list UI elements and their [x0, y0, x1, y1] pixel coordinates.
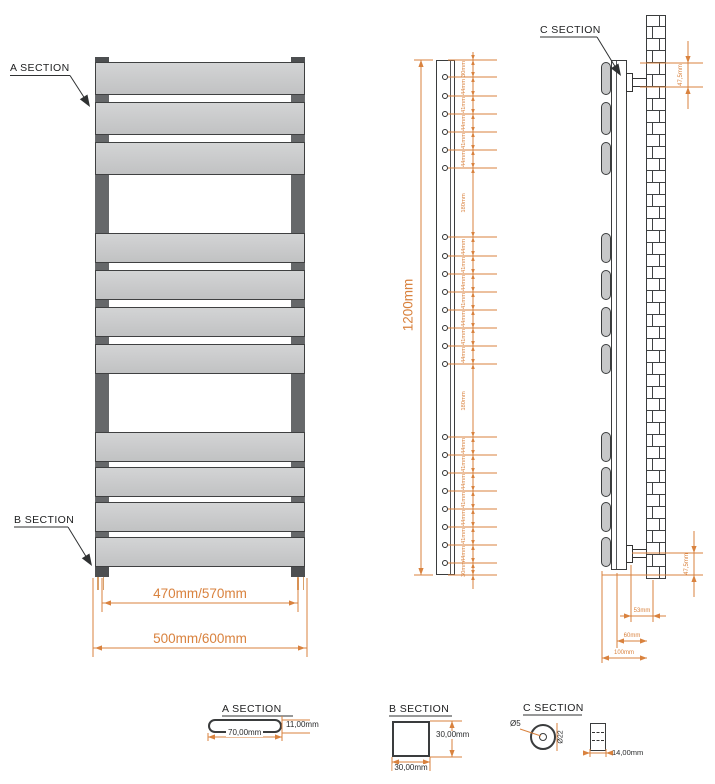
brick-course: [647, 567, 665, 579]
wall-rail-inner-line: [616, 61, 617, 569]
detail-c-depth-dim: 14,00mm: [612, 749, 643, 757]
brick-course: [647, 159, 665, 171]
detail-b-width-dim: 30,00mm: [392, 764, 429, 772]
panel-side-profile: [601, 142, 611, 175]
radiator-panel: [95, 270, 305, 300]
brick-course: [647, 219, 665, 231]
technical-drawing-page: A SECTION B SECTION C SECTION 470mm/570m…: [0, 0, 715, 784]
top-wall-bracket-arm: [632, 78, 647, 87]
pipe-connection: [103, 577, 105, 590]
chain-dim-label: 44mm: [462, 474, 468, 490]
brick-joint: [659, 495, 660, 507]
brick-joint: [659, 423, 660, 435]
brick-course: [647, 363, 665, 375]
brick-joint: [659, 111, 660, 123]
panel-side-profile: [601, 62, 611, 95]
chain-dim-label: 44mm: [462, 347, 468, 363]
brick-joint: [652, 99, 653, 111]
brick-joint: [652, 363, 653, 375]
chain-dim-label: 44mm: [462, 78, 468, 94]
brick-joint: [652, 243, 653, 255]
radiator-panel: [95, 233, 305, 263]
brick-course: [647, 147, 665, 159]
brick-course: [647, 195, 665, 207]
panel-side-profile: [601, 344, 611, 374]
brick-joint: [659, 543, 660, 555]
brick-joint: [659, 231, 660, 243]
front-inner-width-dim: 470mm/570mm: [153, 587, 247, 601]
brick-course: [647, 447, 665, 459]
brick-joint: [659, 351, 660, 363]
brick-course: [647, 243, 665, 255]
brick-course: [647, 399, 665, 411]
bottom-wall-bracket-arm: [632, 549, 647, 558]
detail-a-width-dim: 70,00mm: [226, 729, 263, 737]
detail-c-hidden-line: [592, 740, 604, 741]
brick-joint: [652, 195, 653, 207]
radiator-panel: [95, 344, 305, 374]
pipe-connection: [97, 577, 99, 590]
brick-course: [647, 531, 665, 543]
detail-b-height-dim: 30,00mm: [434, 731, 471, 739]
brick-course: [647, 231, 665, 243]
chain-dim-label: 44mm: [462, 311, 468, 327]
chain-dim-label: 41mm: [462, 257, 468, 273]
brick-course: [647, 303, 665, 315]
wall-top-offset-dim: 47,5mm: [678, 64, 684, 86]
wall-rail-profile: [611, 60, 627, 570]
detail-a-height-dim: 11,00mm: [286, 721, 319, 729]
brick-course: [647, 459, 665, 471]
brick-joint: [652, 219, 653, 231]
brick-joint: [659, 279, 660, 291]
detail-c-outer-dia-dim: Ø22: [558, 730, 565, 743]
pipe-connection: [303, 577, 305, 590]
chain-dim-label: 41mm: [462, 329, 468, 345]
radiator-panel: [95, 62, 305, 95]
brick-joint: [659, 63, 660, 75]
brick-joint: [659, 15, 660, 27]
brick-course: [647, 75, 665, 87]
chain-dim-label: 41mm: [462, 133, 468, 149]
panel-side-profile: [601, 307, 611, 337]
brick-joint: [652, 555, 653, 567]
brick-course: [647, 351, 665, 363]
chain-dim-label: 41mm: [462, 456, 468, 472]
brick-joint: [659, 159, 660, 171]
brick-joint: [652, 171, 653, 183]
brick-joint: [659, 87, 660, 99]
b-section-label: B SECTION: [14, 515, 74, 526]
side-rail-profile: [436, 60, 455, 575]
chain-dim-label: 44mm: [462, 151, 468, 167]
brick-joint: [652, 435, 653, 447]
brick-course: [647, 207, 665, 219]
brick-joint: [659, 567, 660, 579]
brick-course: [647, 87, 665, 99]
brick-joint: [652, 507, 653, 519]
detail-c-inner-dia-dim: Ø5: [510, 720, 521, 728]
side-height-dim: 1200mm: [401, 279, 415, 332]
brick-course: [647, 27, 665, 39]
a-section-label: A SECTION: [10, 63, 70, 74]
brick-course: [647, 267, 665, 279]
chain-dim-label: 30mm: [462, 561, 468, 577]
panel-side-profile: [601, 467, 611, 497]
radiator-panel: [95, 102, 305, 135]
brick-course: [647, 483, 665, 495]
chain-dim-label: 44mm: [462, 438, 468, 454]
radiator-panel: [95, 142, 305, 175]
brick-course: [647, 15, 665, 27]
wall-bottom-offset-dim: 47,5mm: [684, 553, 690, 575]
brick-course: [647, 279, 665, 291]
pipe-connection: [297, 577, 299, 590]
chain-dim-label: 44mm: [462, 238, 468, 254]
detail-b-profile: [392, 721, 430, 757]
brick-joint: [652, 75, 653, 87]
brick-joint: [652, 315, 653, 327]
brick-joint: [659, 183, 660, 195]
brick-course: [647, 543, 665, 555]
radiator-panel: [95, 432, 305, 462]
brick-course: [647, 495, 665, 507]
brick-course: [647, 315, 665, 327]
brick-joint: [652, 387, 653, 399]
brick-course: [647, 291, 665, 303]
brick-joint: [659, 135, 660, 147]
brick-course: [647, 327, 665, 339]
brick-joint: [652, 483, 653, 495]
total-depth-dim: 100mm: [614, 650, 634, 656]
panel-side-profile: [601, 432, 611, 462]
brick-joint: [652, 459, 653, 471]
chain-dim-label: 41mm: [462, 528, 468, 544]
brick-joint: [652, 291, 653, 303]
brick-course: [647, 135, 665, 147]
chain-dim-label: 44mm: [462, 510, 468, 526]
brick-course: [647, 435, 665, 447]
brick-course: [647, 555, 665, 567]
chain-dim-label: 41mm: [462, 492, 468, 508]
chain-dim-label: 41mm: [462, 97, 468, 113]
brick-course: [647, 411, 665, 423]
detail-c-hidden-line: [592, 732, 604, 733]
detail-b-title: B SECTION: [389, 704, 449, 715]
brick-joint: [652, 27, 653, 39]
chain-dim-label: 44mm: [462, 546, 468, 562]
brick-course: [647, 255, 665, 267]
chain-dim-label: 41mm: [462, 293, 468, 309]
brick-joint: [659, 207, 660, 219]
chain-dim-label: 44mm: [462, 115, 468, 131]
brick-joint: [659, 447, 660, 459]
brick-joint: [659, 471, 660, 483]
detail-a-title: A SECTION: [222, 704, 282, 715]
brick-joint: [659, 519, 660, 531]
brick-joint: [659, 303, 660, 315]
panel-side-profile: [601, 233, 611, 263]
brick-course: [647, 519, 665, 531]
brick-joint: [652, 339, 653, 351]
brick-course: [647, 39, 665, 51]
panel-side-profile: [601, 270, 611, 300]
brick-course: [647, 339, 665, 351]
brick-joint: [659, 399, 660, 411]
brick-course: [647, 123, 665, 135]
brick-course: [647, 507, 665, 519]
detail-c-inner-hole: [539, 733, 547, 741]
brick-joint: [659, 255, 660, 267]
chain-dim-label: 30mm: [462, 60, 468, 76]
brick-joint: [652, 51, 653, 63]
chain-dim-label: 44mm: [462, 275, 468, 291]
brick-joint: [652, 411, 653, 423]
brick-course: [647, 111, 665, 123]
chain-dim-label: 180mm: [462, 193, 468, 212]
brick-joint: [659, 375, 660, 387]
rail-to-wall-dim: 60mm: [624, 633, 641, 639]
brick-course: [647, 423, 665, 435]
radiator-panel: [95, 537, 305, 567]
brick-course: [647, 183, 665, 195]
brick-course: [647, 387, 665, 399]
brick-joint: [652, 531, 653, 543]
c-section-label: C SECTION: [540, 25, 601, 36]
radiator-panel: [95, 502, 305, 532]
side-rail-inner-line: [450, 61, 451, 574]
radiator-panel: [95, 467, 305, 497]
brick-joint: [659, 39, 660, 51]
front-outer-width-dim: 500mm/600mm: [153, 632, 247, 646]
bracket-depth-dim: 53mm: [634, 608, 651, 614]
brick-joint: [659, 327, 660, 339]
chain-dim-label: 180mm: [462, 391, 468, 410]
brick-joint: [652, 147, 653, 159]
brick-joint: [652, 123, 653, 135]
radiator-panel: [95, 307, 305, 337]
brick-course: [647, 99, 665, 111]
brick-course: [647, 171, 665, 183]
panel-side-profile: [601, 102, 611, 135]
brick-course: [647, 471, 665, 483]
brick-course: [647, 63, 665, 75]
panel-side-profile: [601, 537, 611, 567]
detail-c-side-profile: [590, 723, 606, 751]
brick-course: [647, 375, 665, 387]
detail-c-title: C SECTION: [523, 703, 584, 714]
brick-joint: [652, 267, 653, 279]
brick-course: [647, 51, 665, 63]
panel-side-profile: [601, 502, 611, 532]
